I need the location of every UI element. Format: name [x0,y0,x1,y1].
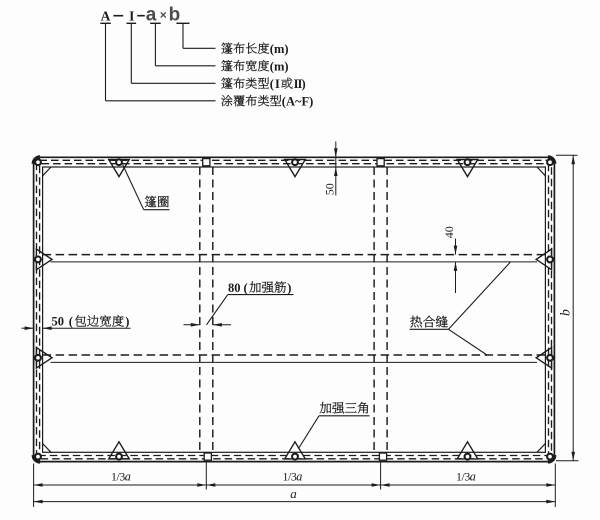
svg-text:(: ( [244,281,248,295]
svg-text:50: 50 [323,183,337,195]
svg-text:a: a [470,470,476,484]
svg-text:b: b [169,4,181,25]
svg-text:(: ( [270,77,274,91]
svg-text:): ) [287,281,291,295]
svg-text:(A~F): (A~F) [282,94,314,108]
svg-text:): ) [125,315,129,329]
svg-text:1/3: 1/3 [456,470,470,484]
svg-text:1/3: 1/3 [283,470,297,484]
svg-text:b: b [558,309,573,316]
svg-text:): ) [302,77,306,91]
svg-text:80: 80 [228,281,241,295]
svg-text:(m): (m) [270,42,289,56]
svg-text:I: I [275,77,280,91]
svg-text:A: A [101,8,111,23]
svg-text:1/3: 1/3 [111,470,125,484]
svg-text:I: I [129,8,134,23]
svg-text:40: 40 [442,226,456,238]
svg-text:a: a [146,4,157,25]
svg-text:(: ( [69,315,73,329]
svg-text:a: a [290,486,297,501]
svg-text:(m): (m) [270,59,289,73]
svg-text:50: 50 [52,315,65,329]
svg-text:×: × [160,8,167,22]
svg-text:a: a [125,470,131,484]
svg-text:a: a [296,470,302,484]
